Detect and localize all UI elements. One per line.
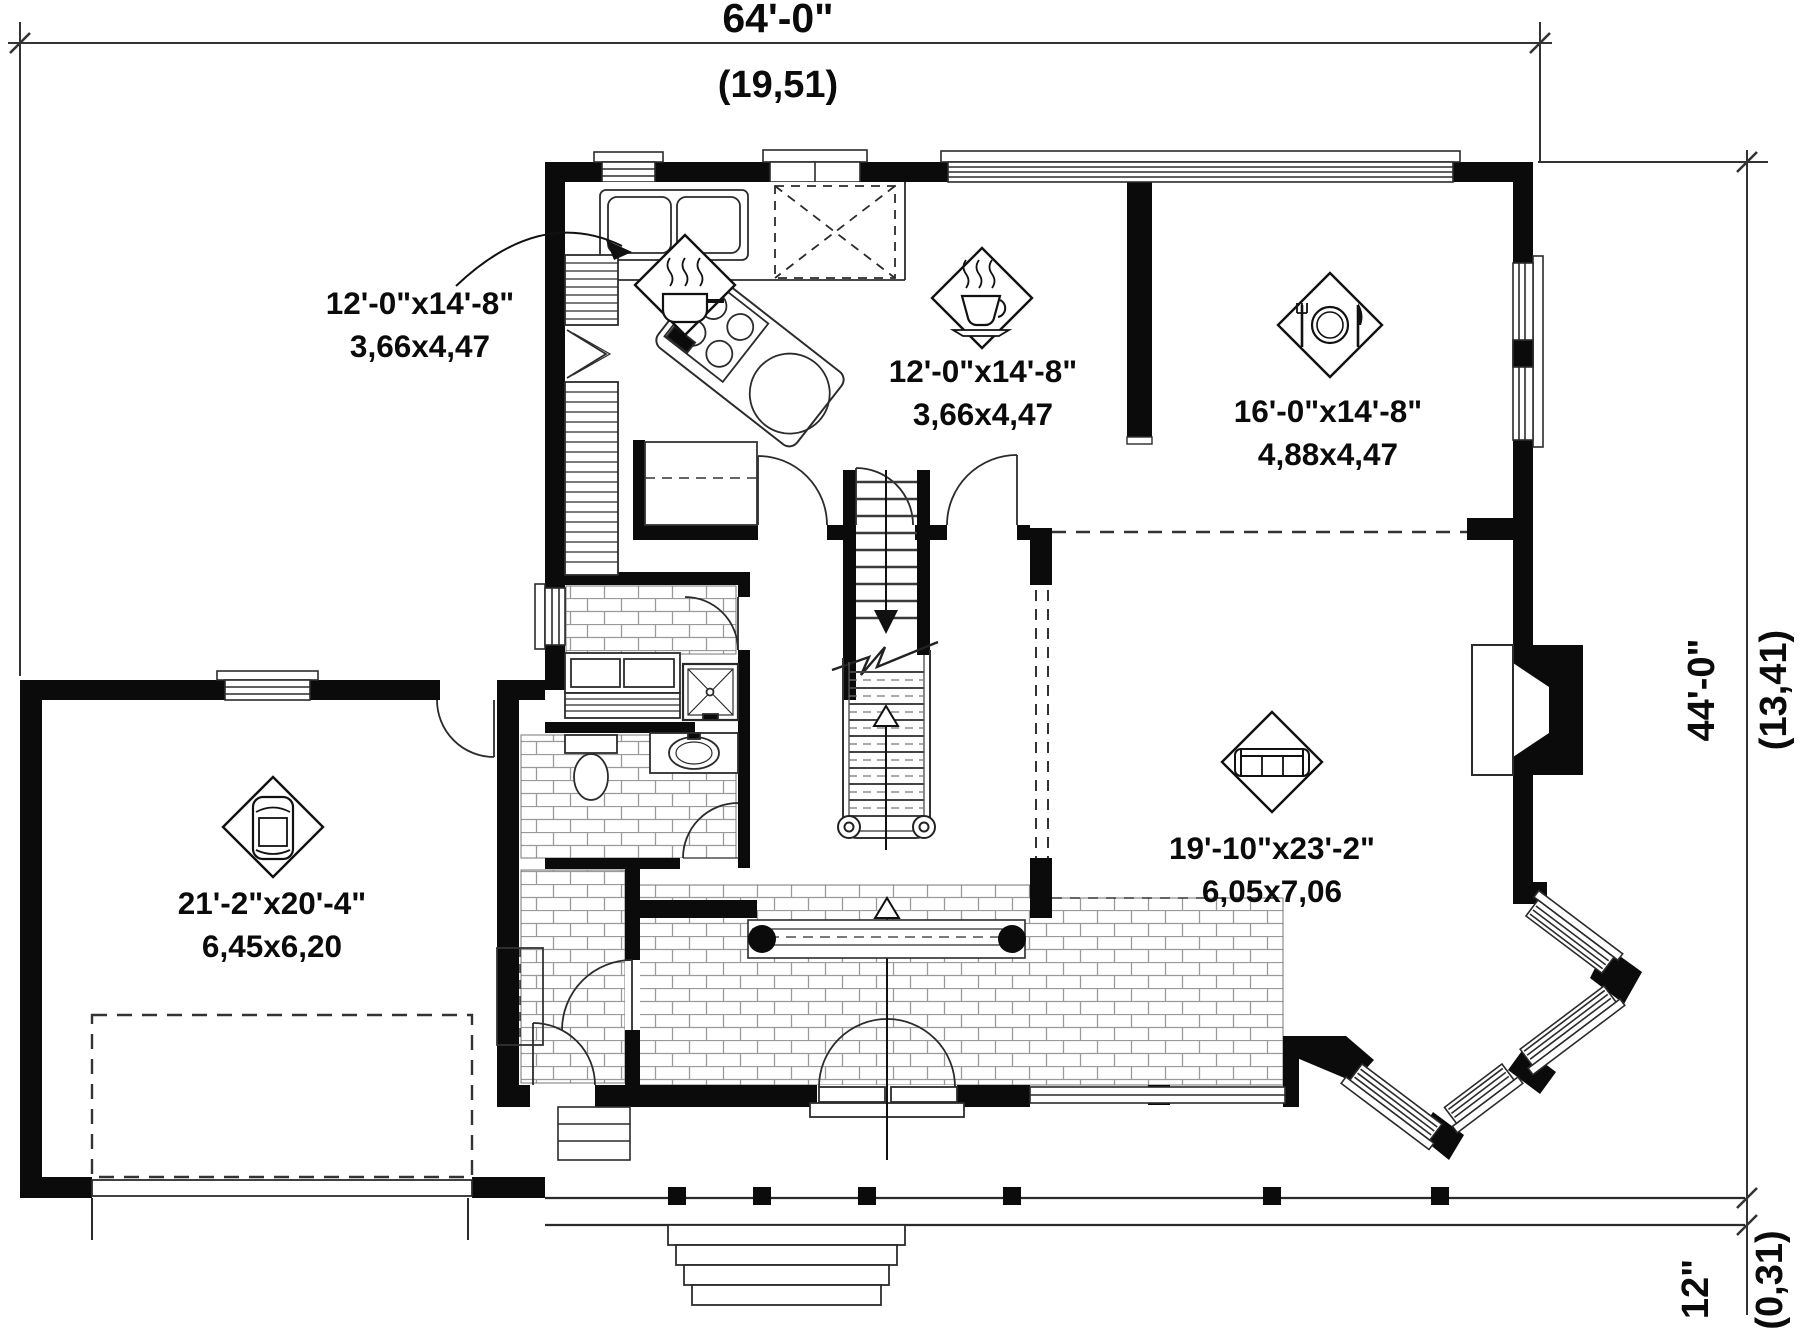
living-room-size-imperial: 19'-10"x23'-2" bbox=[1169, 830, 1375, 866]
porch bbox=[92, 1107, 1745, 1305]
coffee-cup-icon bbox=[932, 248, 1032, 348]
dining-room-size-imperial: 16'-0"x14'-8" bbox=[1234, 393, 1422, 429]
living-room-size-metric: 6,05x7,06 bbox=[1202, 873, 1342, 909]
kitchen-size-imperial: 12'-0"x14'-8" bbox=[326, 285, 514, 321]
dinette-size-metric: 3,66x4,47 bbox=[913, 396, 1053, 432]
foyer-partition bbox=[748, 920, 1026, 958]
car-icon bbox=[223, 777, 323, 877]
right-height-metric: (13,41) bbox=[1753, 630, 1795, 750]
porch-posts bbox=[668, 1187, 1449, 1205]
sofa-icon bbox=[1222, 712, 1322, 812]
garage-size-imperial: 21'-2"x20'-4" bbox=[178, 885, 366, 921]
dining-room-size-metric: 4,88x4,47 bbox=[1258, 436, 1398, 472]
column bbox=[998, 925, 1026, 953]
top-width-metric: (19,51) bbox=[718, 64, 838, 106]
side-steps bbox=[558, 1107, 630, 1160]
place-setting-icon bbox=[1278, 273, 1382, 377]
entry-steps bbox=[668, 1225, 905, 1305]
porch-depth-imperial: 12" bbox=[1675, 1259, 1717, 1319]
right-height-imperial: 44'-0" bbox=[1681, 638, 1723, 741]
floor-plan-page: 64'-0" (19,51) 44'-0" (13,41) 12" (0,31) bbox=[0, 0, 1800, 1329]
dinette-size-imperial: 12'-0"x14'-8" bbox=[889, 353, 1077, 389]
column bbox=[748, 925, 776, 953]
porch-depth-metric: (0,31) bbox=[1749, 1230, 1791, 1329]
kitchen-size-metric: 3,66x4,47 bbox=[350, 328, 490, 364]
fireplace bbox=[1472, 645, 1583, 775]
floor-plan-drawing: 64'-0" (19,51) 44'-0" (13,41) 12" (0,31) bbox=[0, 0, 1800, 1329]
garage-size-metric: 6,45x6,20 bbox=[202, 928, 342, 964]
top-width-imperial: 64'-0" bbox=[722, 0, 833, 41]
